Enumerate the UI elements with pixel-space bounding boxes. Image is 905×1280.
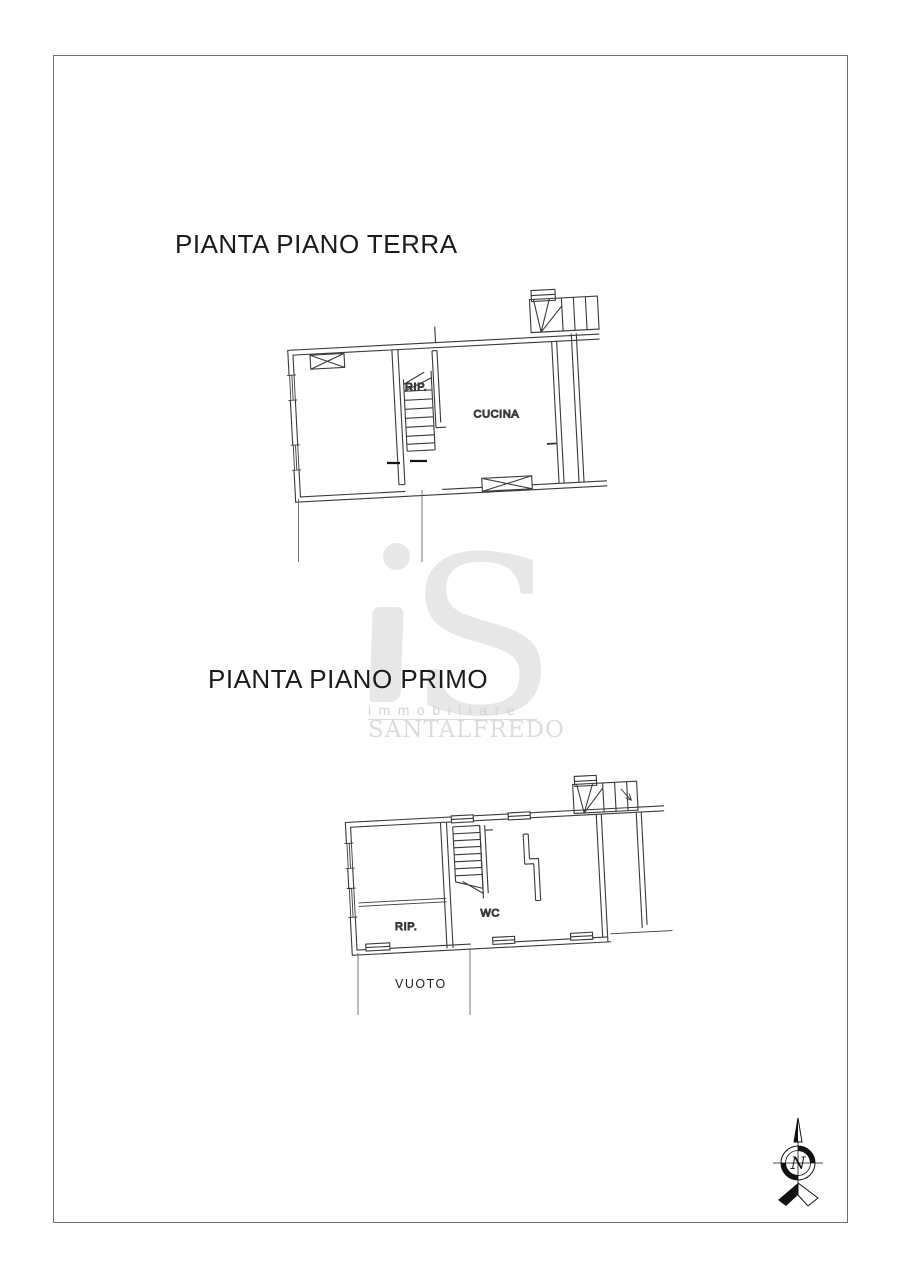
north-compass-icon: N (765, 1115, 835, 1210)
room-label-wc: WC (480, 908, 500, 920)
ground-floor-plan: RIP. CUCINA (280, 290, 615, 565)
document-page: S immobiliare SANTALFREDO PIANTA PIANO T… (0, 0, 905, 1280)
room-label-cucina: CUCINA (474, 409, 520, 421)
first-floor-plan: RIP. WC VUOTO (315, 775, 675, 1020)
first-floor-title: PIANTA PIANO PRIMO (208, 664, 488, 695)
watermark-subtitle: immobiliare (368, 702, 540, 718)
watermark-brand: SANTALFREDO (368, 717, 540, 743)
compass-north-label: N (790, 1154, 807, 1174)
room-label-vuoto: VUOTO (395, 977, 447, 991)
room-label-rip-first: RIP. (395, 921, 417, 933)
room-label-rip-ground: RIP. (405, 381, 427, 393)
ground-floor-title: PIANTA PIANO TERRA (175, 229, 458, 260)
